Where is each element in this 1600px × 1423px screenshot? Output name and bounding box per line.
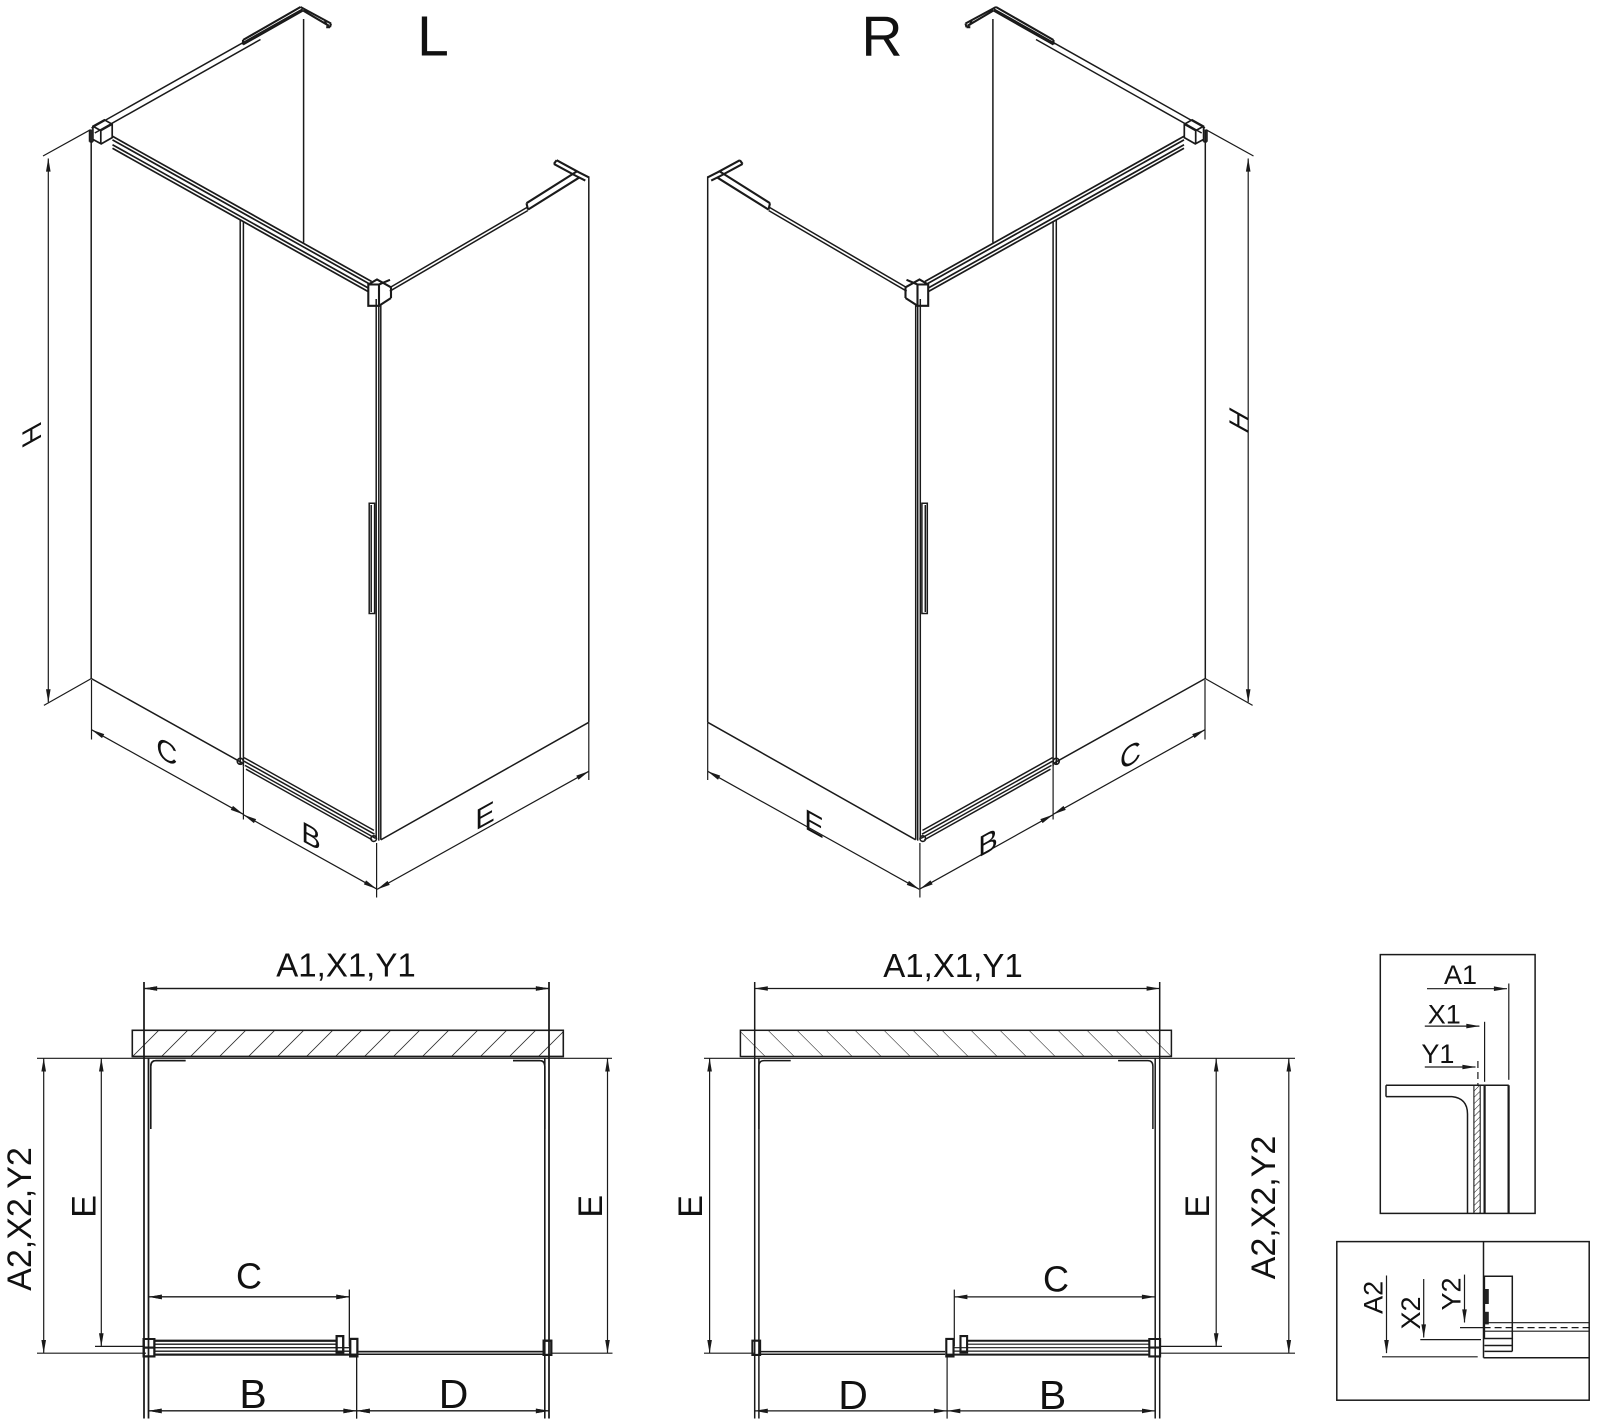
svg-text:D: D	[838, 1372, 868, 1418]
svg-text:A2,X2,Y2: A2,X2,Y2	[1245, 1136, 1283, 1280]
svg-text:A2: A2	[1359, 1281, 1389, 1314]
svg-text:A1,X1,Y1: A1,X1,Y1	[883, 947, 1022, 984]
svg-text:C: C	[1120, 733, 1141, 777]
svg-text:E: E	[1179, 1195, 1217, 1218]
svg-text:E: E	[672, 1195, 710, 1218]
svg-text:C: C	[1043, 1258, 1069, 1299]
svg-text:B: B	[978, 821, 997, 864]
svg-text:D: D	[439, 1371, 469, 1417]
svg-text:E: E	[475, 794, 494, 837]
svg-text:A1,X1,Y1: A1,X1,Y1	[276, 946, 415, 983]
svg-text:H: H	[18, 416, 48, 452]
svg-text:Y1: Y1	[1421, 1039, 1454, 1069]
svg-text:E: E	[572, 1195, 610, 1218]
svg-text:C: C	[236, 1255, 262, 1296]
svg-text:A1: A1	[1444, 960, 1477, 990]
svg-text:X1: X1	[1428, 1000, 1461, 1030]
svg-text:A2,X2,Y2: A2,X2,Y2	[1, 1147, 39, 1291]
svg-text:X2: X2	[1396, 1296, 1426, 1329]
svg-text:E: E	[804, 802, 823, 845]
svg-text:R: R	[861, 5, 902, 69]
svg-text:B: B	[239, 1371, 266, 1417]
svg-text:Y2: Y2	[1436, 1277, 1466, 1310]
svg-text:B: B	[301, 815, 320, 858]
svg-text:E: E	[65, 1195, 103, 1218]
svg-text:H: H	[1225, 403, 1255, 439]
svg-text:B: B	[1039, 1372, 1066, 1418]
svg-text:L: L	[417, 5, 449, 69]
